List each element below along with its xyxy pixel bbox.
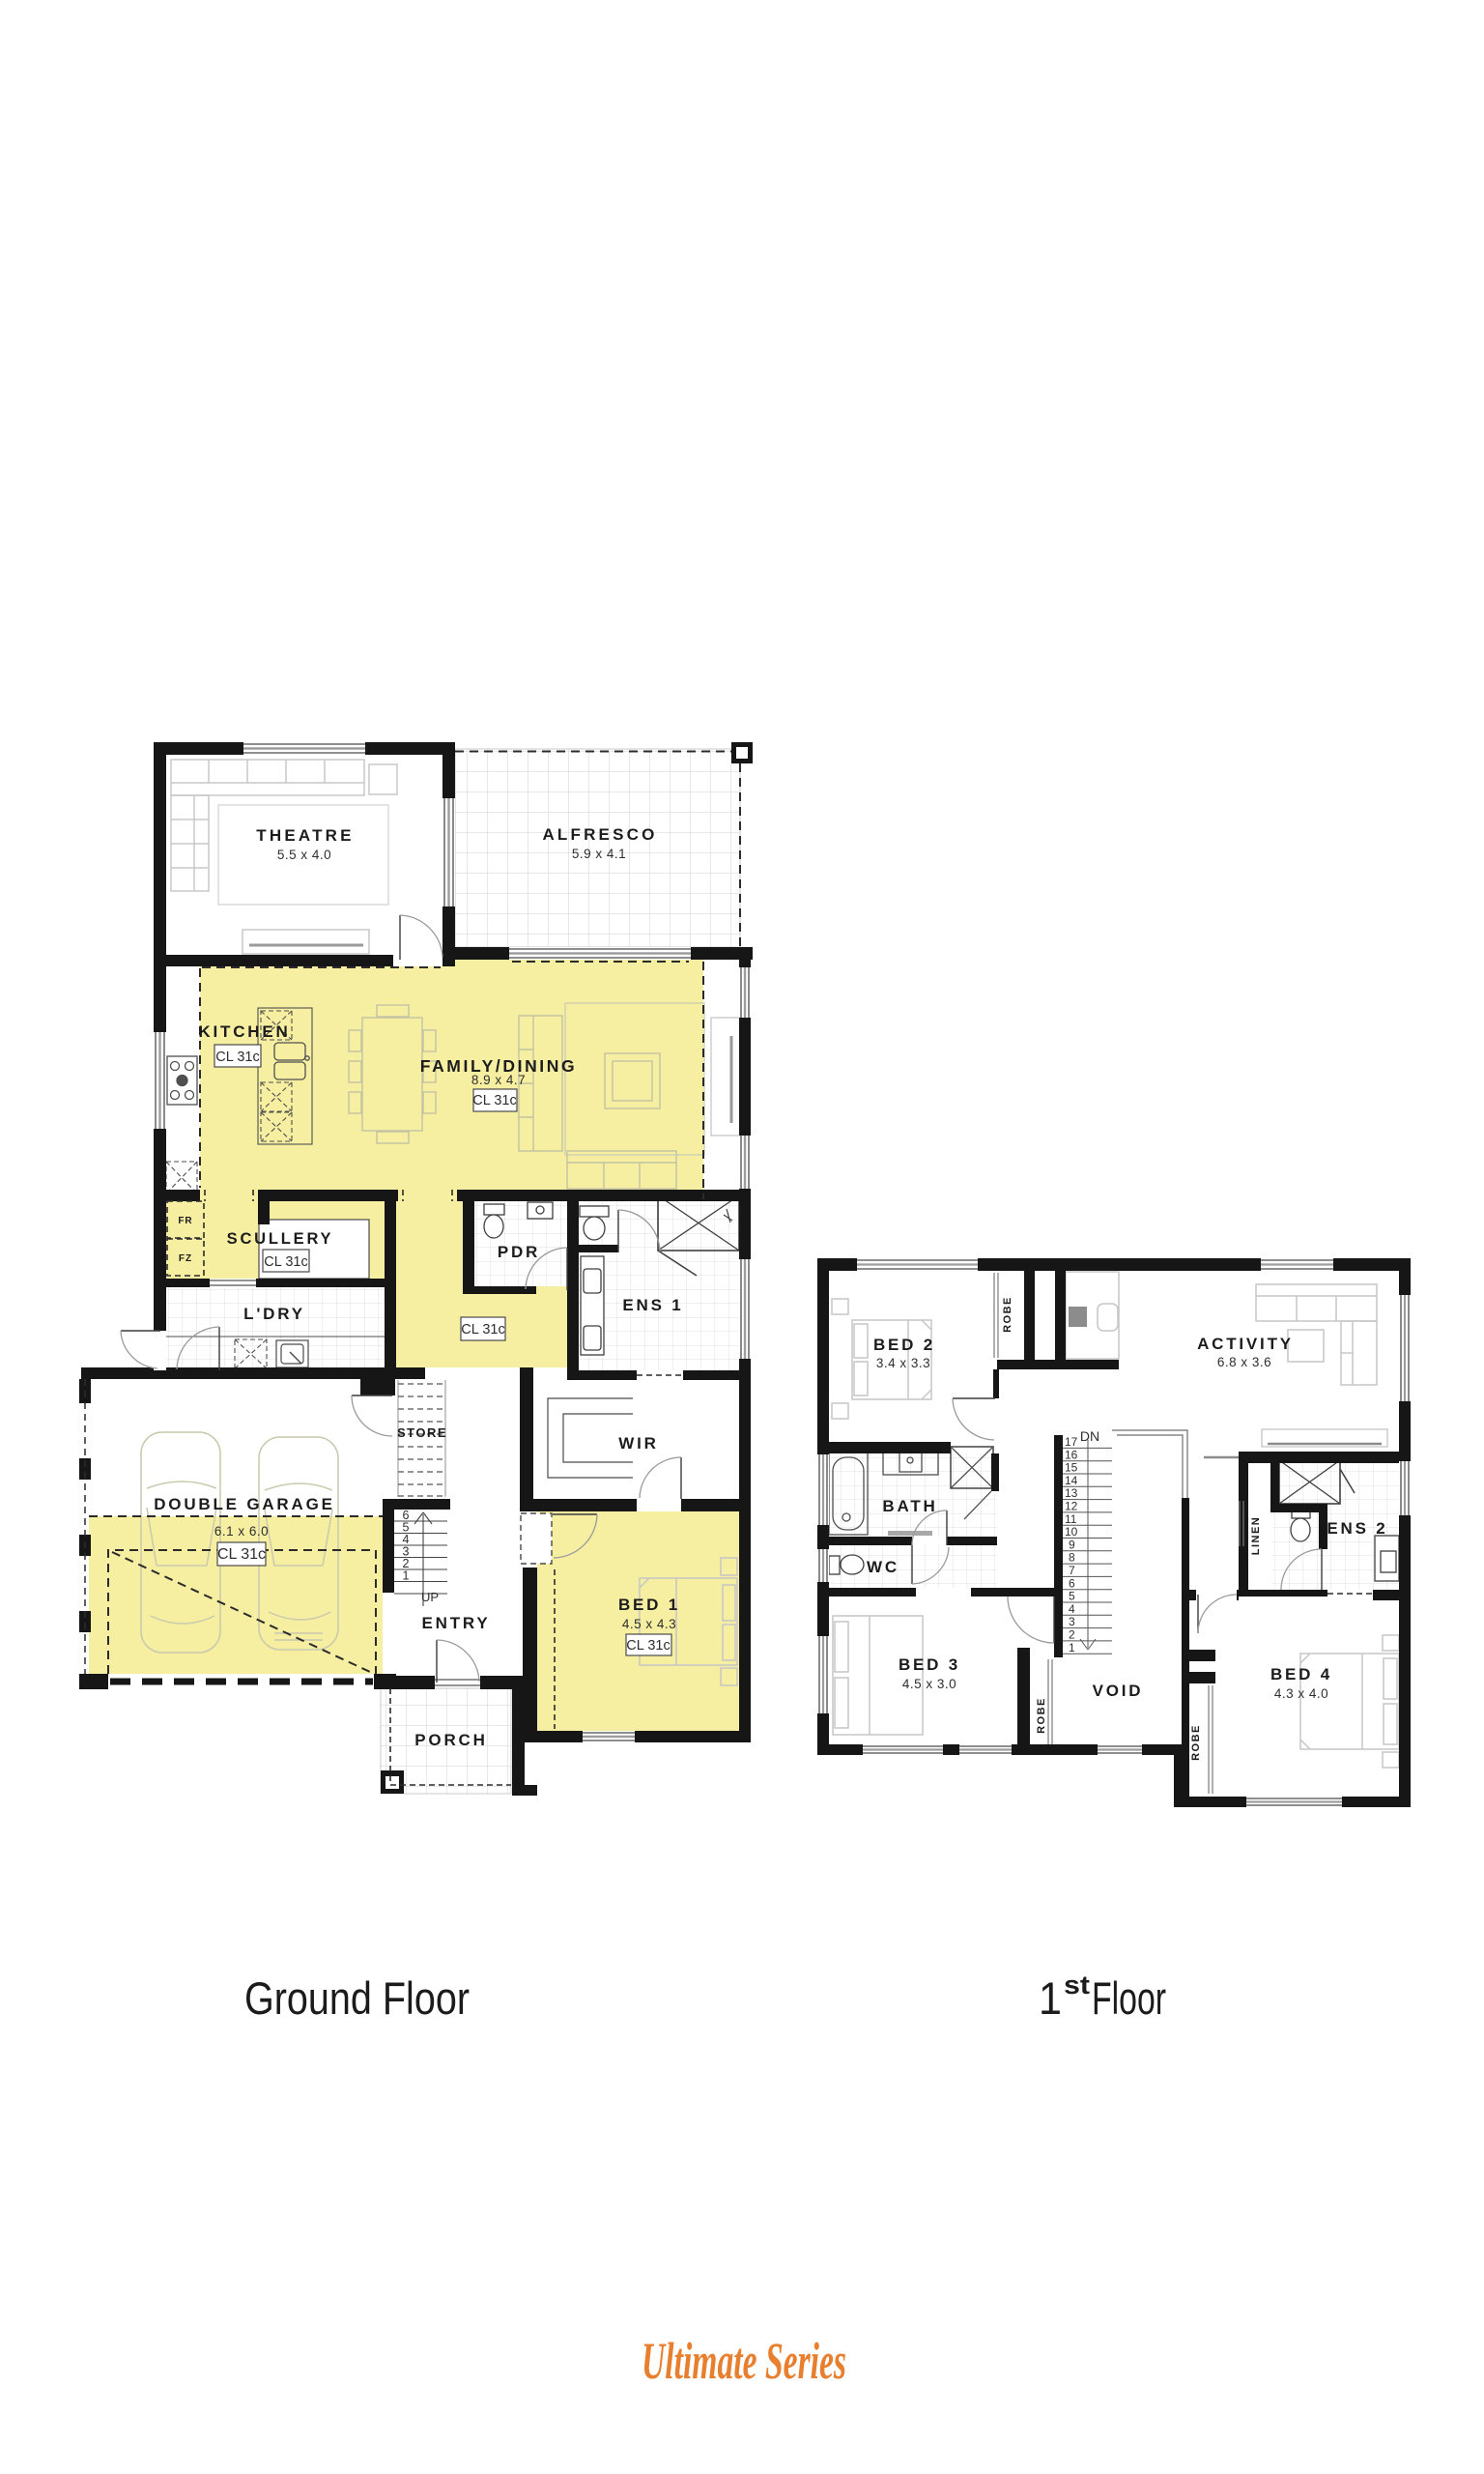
svg-text:CL 31c: CL 31c bbox=[626, 1638, 670, 1654]
svg-text:11: 11 bbox=[1065, 1512, 1077, 1526]
svg-text:DN: DN bbox=[1080, 1428, 1099, 1444]
svg-text:CL 31c: CL 31c bbox=[461, 1322, 504, 1338]
svg-text:PDR: PDR bbox=[498, 1243, 540, 1261]
svg-text:THEATRE: THEATRE bbox=[256, 826, 354, 845]
svg-text:4: 4 bbox=[1069, 1602, 1075, 1616]
svg-text:Ground Floor: Ground Floor bbox=[244, 1972, 470, 2024]
svg-text:SCULLERY: SCULLERY bbox=[227, 1230, 334, 1248]
svg-text:BED 2: BED 2 bbox=[873, 1336, 935, 1354]
svg-text:6: 6 bbox=[1069, 1576, 1075, 1590]
svg-text:5: 5 bbox=[1069, 1590, 1075, 1603]
svg-text:ENS 1: ENS 1 bbox=[622, 1296, 683, 1314]
svg-text:3: 3 bbox=[1069, 1615, 1075, 1628]
svg-text:BATH: BATH bbox=[882, 1497, 937, 1515]
svg-text:ALFRESCO: ALFRESCO bbox=[542, 825, 657, 844]
svg-text:1: 1 bbox=[403, 1569, 410, 1583]
svg-text:12: 12 bbox=[1065, 1500, 1078, 1513]
svg-text:Ultimate Series: Ultimate Series bbox=[642, 2332, 846, 2390]
svg-text:5.9 x 4.1: 5.9 x 4.1 bbox=[572, 847, 626, 861]
svg-text:4.5 x 4.3: 4.5 x 4.3 bbox=[622, 1617, 676, 1631]
svg-text:8: 8 bbox=[1069, 1551, 1075, 1565]
svg-text:CL 31c: CL 31c bbox=[215, 1050, 259, 1065]
svg-text:1: 1 bbox=[1039, 1972, 1062, 2024]
svg-text:CL 31c: CL 31c bbox=[472, 1093, 516, 1108]
svg-text:15: 15 bbox=[1065, 1461, 1078, 1475]
svg-text:4.3 x 4.0: 4.3 x 4.0 bbox=[1274, 1686, 1328, 1701]
svg-text:FZ: FZ bbox=[179, 1253, 192, 1264]
svg-text:9: 9 bbox=[1069, 1538, 1075, 1551]
svg-text:LINEN: LINEN bbox=[1250, 1516, 1262, 1556]
svg-text:st: st bbox=[1064, 1971, 1090, 1999]
svg-text:1: 1 bbox=[1069, 1641, 1075, 1654]
svg-text:6.8 x 3.6: 6.8 x 3.6 bbox=[1217, 1355, 1271, 1369]
svg-text:KITCHEN: KITCHEN bbox=[198, 1022, 290, 1041]
svg-text:BED 4: BED 4 bbox=[1270, 1665, 1332, 1683]
svg-text:10: 10 bbox=[1065, 1525, 1078, 1539]
svg-text:ENTRY: ENTRY bbox=[422, 1614, 491, 1632]
svg-text:PORCH: PORCH bbox=[414, 1731, 487, 1749]
svg-text:FR: FR bbox=[178, 1216, 192, 1226]
svg-text:ROBE: ROBE bbox=[1190, 1724, 1202, 1761]
svg-text:ROBE: ROBE bbox=[1036, 1697, 1047, 1734]
svg-text:CL 31c: CL 31c bbox=[217, 1546, 266, 1563]
svg-text:UP: UP bbox=[421, 1590, 439, 1604]
svg-text:ROBE: ROBE bbox=[1002, 1296, 1013, 1333]
svg-text:6.1 x 6.0: 6.1 x 6.0 bbox=[214, 1524, 269, 1539]
svg-text:STORE: STORE bbox=[397, 1425, 447, 1440]
svg-text:3.4 x 3.3: 3.4 x 3.3 bbox=[876, 1356, 930, 1370]
svg-text:L'DRY: L'DRY bbox=[243, 1305, 305, 1323]
svg-text:16: 16 bbox=[1065, 1448, 1078, 1461]
svg-text:WIR: WIR bbox=[618, 1434, 658, 1453]
svg-text:8.9 x 4.7: 8.9 x 4.7 bbox=[471, 1073, 526, 1087]
svg-text:4.5 x 3.0: 4.5 x 3.0 bbox=[902, 1677, 956, 1691]
svg-text:DOUBLE GARAGE: DOUBLE GARAGE bbox=[154, 1495, 335, 1513]
svg-text:2: 2 bbox=[1069, 1628, 1075, 1642]
svg-text:13: 13 bbox=[1065, 1486, 1078, 1500]
svg-text:CL 31c: CL 31c bbox=[264, 1254, 307, 1270]
svg-text:VOID: VOID bbox=[1093, 1682, 1144, 1700]
svg-text:Floor: Floor bbox=[1092, 1972, 1166, 2024]
svg-text:ENS 2: ENS 2 bbox=[1327, 1519, 1387, 1538]
svg-text:14: 14 bbox=[1065, 1474, 1078, 1487]
svg-text:5.5 x 4.0: 5.5 x 4.0 bbox=[277, 848, 331, 862]
svg-text:ACTIVITY: ACTIVITY bbox=[1197, 1335, 1294, 1353]
svg-text:7: 7 bbox=[1069, 1564, 1075, 1577]
svg-text:17: 17 bbox=[1065, 1435, 1078, 1449]
svg-text:BED 3: BED 3 bbox=[899, 1655, 960, 1674]
svg-text:BED 1: BED 1 bbox=[618, 1596, 680, 1614]
svg-text:WC: WC bbox=[867, 1558, 899, 1576]
